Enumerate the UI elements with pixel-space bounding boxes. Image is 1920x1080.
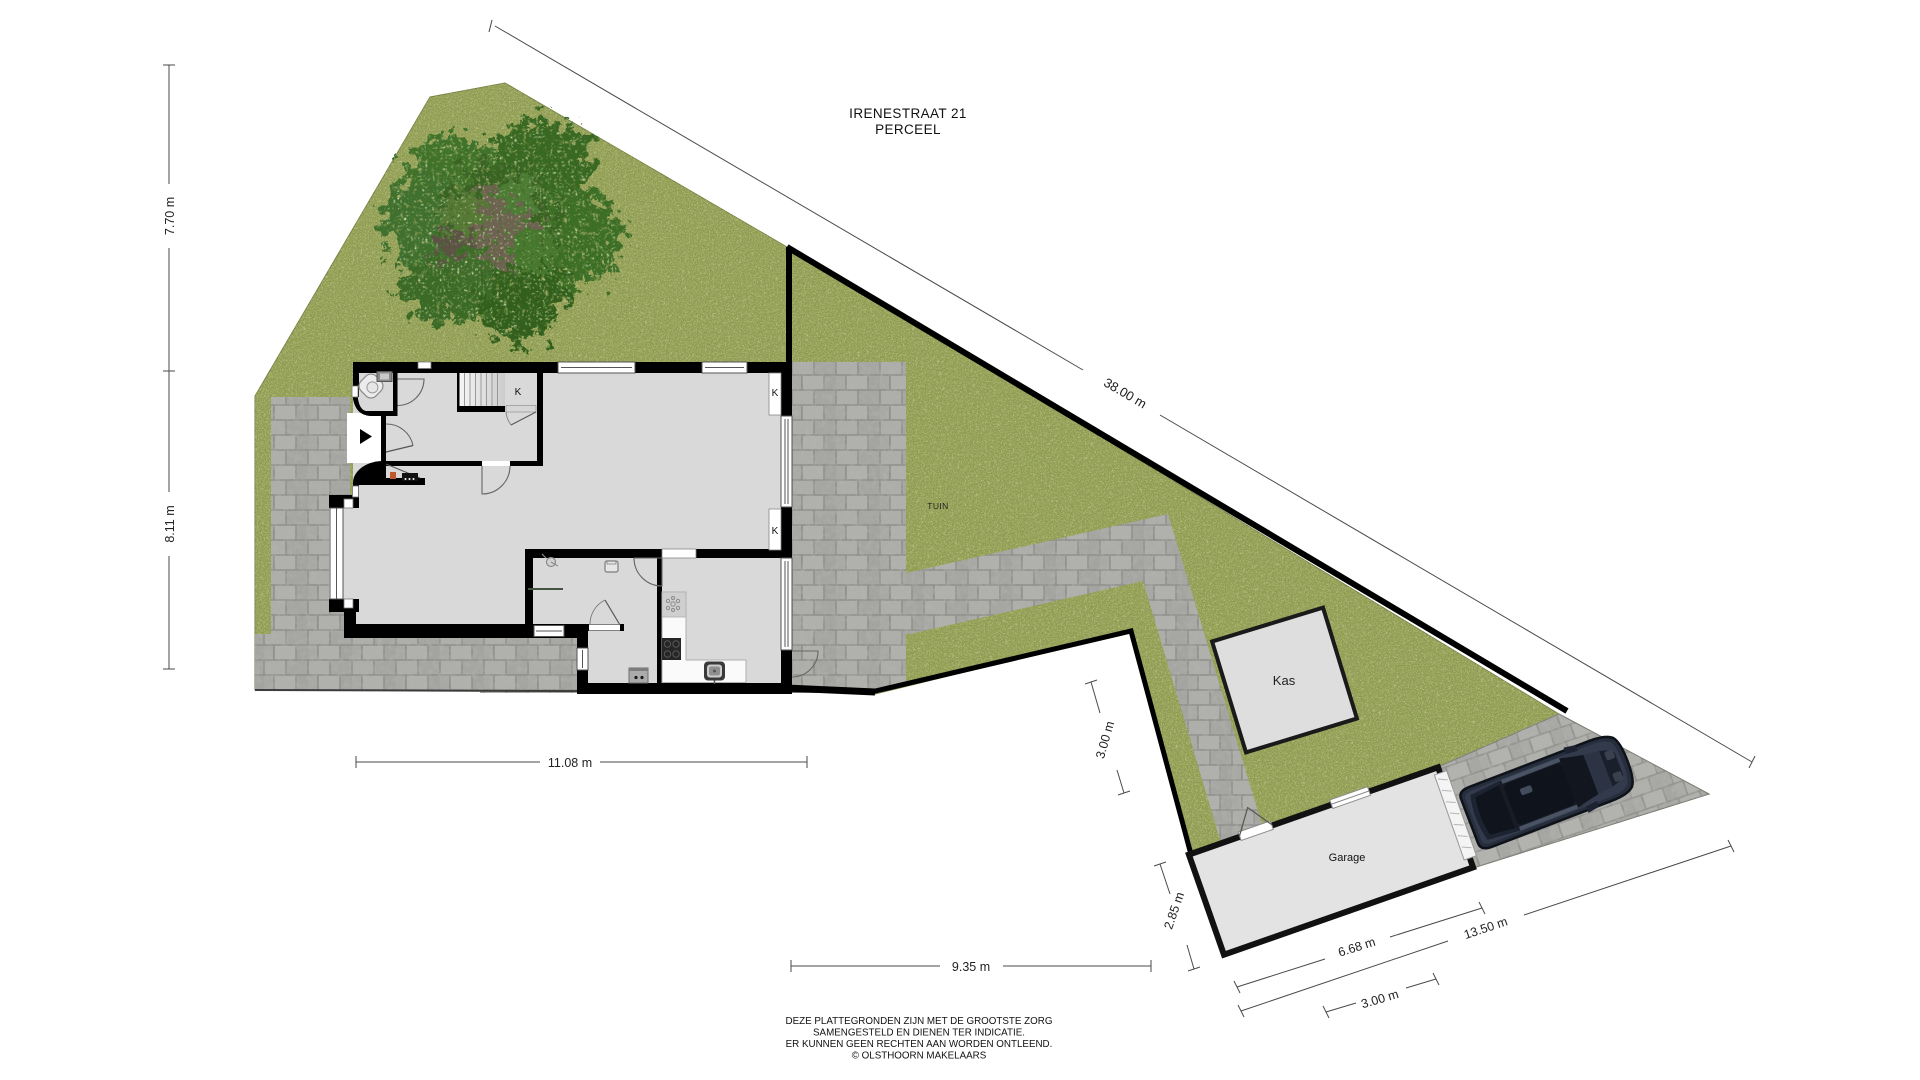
svg-text:8.11 m: 8.11 m [163, 505, 177, 542]
svg-text:K: K [772, 388, 779, 399]
svg-text:Garage: Garage [1329, 852, 1366, 864]
svg-text:DEZE PLATTEGRONDEN ZIJN MET DE: DEZE PLATTEGRONDEN ZIJN MET DE GROOTSTE … [786, 1016, 1053, 1027]
svg-text:11.08 m: 11.08 m [548, 756, 592, 770]
svg-text:Kas: Kas [1273, 673, 1296, 688]
svg-text:© OLSTHOORN MAKELAARS: © OLSTHOORN MAKELAARS [852, 1051, 987, 1062]
svg-text:ER KUNNEN GEEN RECHTEN AAN WOR: ER KUNNEN GEEN RECHTEN AAN WORDEN ONTLEE… [786, 1039, 1053, 1050]
svg-text:K: K [515, 387, 522, 398]
svg-text:SAMENGESTELD EN DIENEN TER IND: SAMENGESTELD EN DIENEN TER INDICATIE. [813, 1028, 1025, 1039]
svg-text:K: K [772, 526, 779, 537]
svg-text:TUIN: TUIN [927, 501, 948, 511]
svg-text:PERCEEL: PERCEEL [875, 122, 941, 137]
svg-text:9.35 m: 9.35 m [952, 960, 990, 974]
svg-text:IRENESTRAAT 21: IRENESTRAAT 21 [849, 106, 967, 121]
svg-text:7.70 m: 7.70 m [163, 197, 177, 235]
